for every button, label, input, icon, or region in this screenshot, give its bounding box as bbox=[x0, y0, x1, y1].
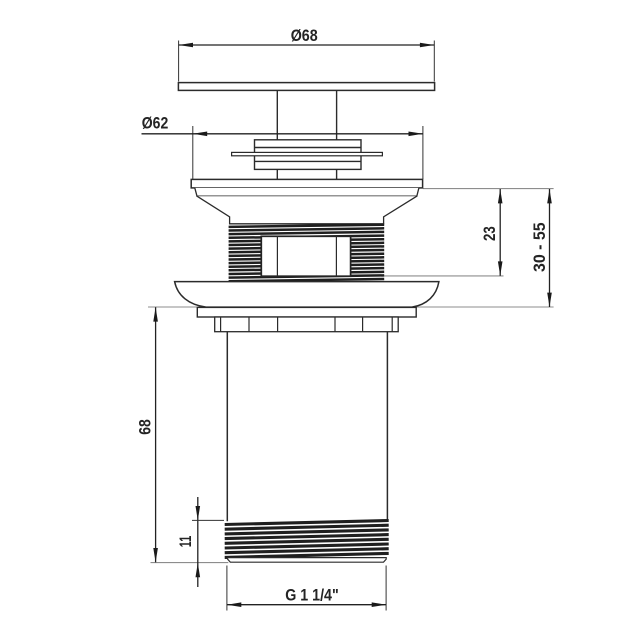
svg-text:Ø62: Ø62 bbox=[142, 114, 169, 133]
svg-text:30 - 55: 30 - 55 bbox=[530, 222, 549, 272]
svg-text:G 1 1/4": G 1 1/4" bbox=[285, 586, 339, 605]
svg-text:11: 11 bbox=[176, 536, 195, 548]
svg-text:23: 23 bbox=[480, 226, 499, 241]
svg-text:68: 68 bbox=[136, 419, 155, 435]
svg-text:Ø68: Ø68 bbox=[291, 26, 318, 45]
